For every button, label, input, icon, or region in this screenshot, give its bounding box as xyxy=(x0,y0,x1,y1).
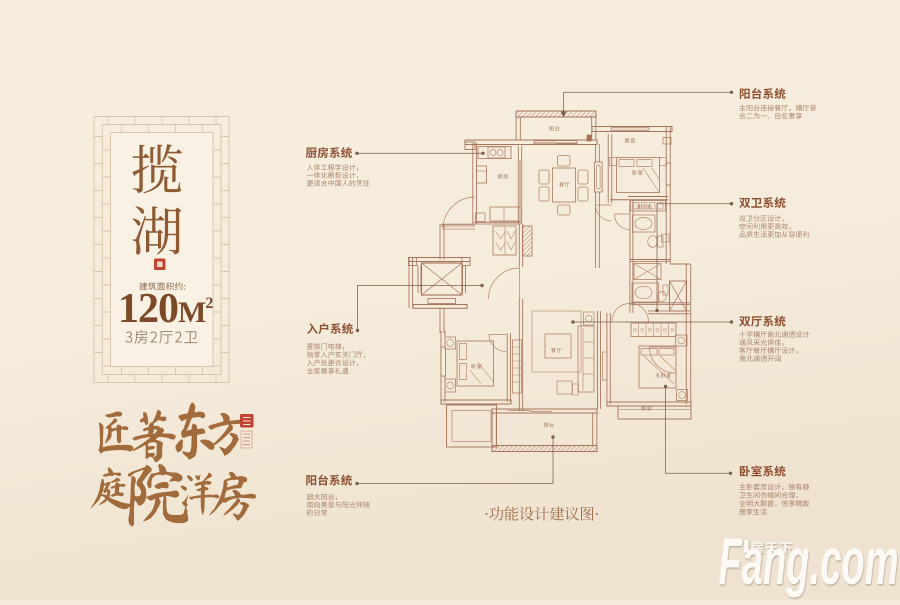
svg-text:Fang.com: Fang.com xyxy=(719,525,899,598)
